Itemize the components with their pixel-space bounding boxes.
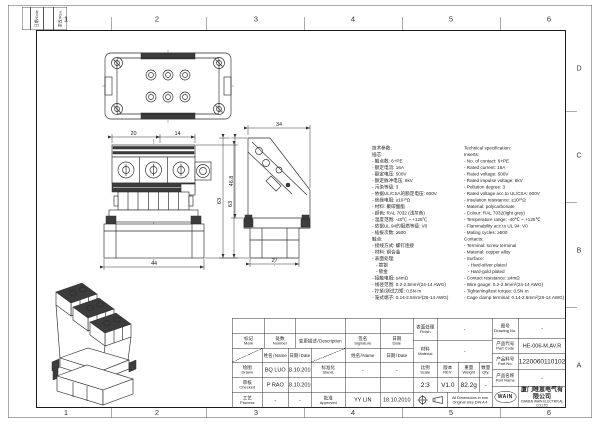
drawing-no-value: - [518,318,566,339]
margin-tick [402,408,403,418]
rev-value: V1.0 [437,377,459,393]
corner-cell: 更改/Rev. [53,7,67,30]
margin-tick [566,112,577,113]
weight-value: 82.2g [458,377,480,393]
label-material: 材料 Material [413,340,438,363]
spec-chinese-column: 技术参数:插芯:- 触点数: 6+PE- 额定电流: 16A- 额定电压: 50… [372,145,461,301]
projection-symbols [413,392,448,408]
corner-cell: 日期/Date [30,7,44,30]
margin-tick [402,17,403,30]
column-label: 4 [343,409,363,418]
spec-line-en: - Cage clamp terminal: 0.14-2.5mm²(26-14… [464,295,565,302]
header-number: 处数 Number [265,333,296,349]
process-date: - [288,392,312,408]
revision-cell-empty [345,377,381,393]
material-value: - [437,340,493,363]
corner-label: 更改/Rev. [57,10,63,27]
margin-tick [305,408,306,418]
label-drawn: 绘图 Drawn [232,362,263,378]
revision-cell-empty [345,318,381,334]
subheader-name: 姓名/Name [345,348,381,363]
dim-label: 63 [217,198,223,204]
margin-tick [500,17,501,30]
column-label: 6 [539,409,559,418]
header-mark: 标记 Mark [232,333,265,349]
margin-tick [207,17,208,30]
column-label: 6 [539,15,559,24]
row-label: C [573,151,585,159]
revision-cell-empty [380,377,414,393]
dimension-note: All Dimensions in mm Original Size DIN A… [448,392,493,408]
dim-label: 20 [130,131,136,137]
margin-tick [566,203,577,204]
label-stand: 标准化 Stand. [311,362,346,378]
dim-label: 14 [174,131,180,137]
header-date: 日期 Date [380,333,414,349]
label-part-code: 产品代号 Part Code [492,338,519,354]
label-finish: 表面处理 Finish [413,318,438,341]
label-qty: 数量 Qty. [479,362,493,378]
part-no-value: 1220060110102 [518,353,566,370]
revision-cell-empty [380,318,414,334]
approved-date: 18.10.2010 [380,392,414,408]
side-view-drawing: 34 46.8 63 27 [212,120,322,270]
subheader-date: 日期/Date [380,348,414,363]
part-name-value: - [518,369,566,387]
revision-cell-empty [295,318,346,334]
revision-cell-empty [265,318,296,334]
label-drawing-no: 图号 Drawing No. [492,318,519,339]
wain-logo: WAIN [494,391,516,403]
column-label: 4 [343,15,363,24]
column-label: 5 [441,409,461,418]
company-cell: 厦门唯恩电气有限公司 XIAMEN WAIN ELECTRICAL CO.LTD [518,386,566,408]
label-approved: 批准 Approved [311,392,346,408]
diagonal-cell [311,348,346,363]
column-label: 2 [147,409,167,418]
drawn-date: 18.10.2010 [288,362,312,378]
dim-label: 34 [276,122,282,128]
checked-date: 18.10.2010 [288,377,312,393]
row-label: D [573,64,585,72]
column-label: 3 [246,409,266,418]
margin-tick [112,17,113,30]
label-process: 工艺 Process [232,392,263,408]
drawing-sheet-viewport: 1 2 3 4 5 6 1 2 3 4 5 6 D C B A 日期/Date … [0,0,600,424]
margin-tick [305,17,306,30]
label-checked: 审核 Checked [232,377,263,393]
label-part-name: 产品名称 Part Name [492,369,519,387]
dim-label: 27 [271,258,277,264]
margin-tick [500,408,501,418]
stand-name: - [345,362,381,378]
spec-line-cn: - 笼式端子: 0.14-2.5mm²(26-14 AWG) [372,295,461,302]
company-name-en: XIAMEN WAIN ELECTRICAL CO.LTD [519,400,566,408]
row-label: A [573,361,585,369]
column-label: 3 [246,15,266,24]
spec-english-column: Technical specification:Inserts:- No. of… [464,145,565,301]
company-name-cn: 厦门唯恩电气有限公司 [519,386,566,400]
column-label: 2 [147,15,167,24]
finish-value: - [437,318,493,341]
stand-date: - [380,362,414,378]
first-angle-projection-icon [417,395,428,406]
revision-cell-empty [311,377,346,393]
part-code-value: HE-006-M.AV.R [518,338,566,354]
approved-name: YY LIN [345,392,381,408]
subheader-name: 姓名/Name [262,348,289,363]
corner-label: 日期/Date [34,10,40,28]
margin-tick [112,408,113,418]
truncated-cone-icon [432,396,444,405]
top-view-drawing [98,47,238,126]
process-name: - [262,392,289,408]
qty-value: - [479,377,493,393]
header-signature: 签名 Signature [345,333,381,349]
row-label: B [573,246,585,254]
margin-tick [207,408,208,418]
label-scale: 比例 Scale [413,362,438,378]
column-label: 1 [56,409,76,418]
label-weight: 重量 Weight [458,362,480,378]
dim-label: 46.8 [229,176,235,187]
drawing-sheet: 1 2 3 4 5 6 1 2 3 4 5 6 D C B A 日期/Date … [0,0,600,424]
diagonal-cell [232,348,263,363]
header-description: 变更描述/Description [295,333,346,349]
isometric-view-drawing [27,260,157,406]
scale-value: 2:3 [413,377,438,393]
label-part-no: 产品料号 Part No. [492,353,519,370]
company-logo-cell: WAIN [492,386,519,408]
subheader-date: 日期/Date [288,348,312,363]
checked-name: P RAO [262,377,289,393]
column-label: 5 [441,15,461,24]
revision-cell-empty [232,318,265,334]
label-rev: 版本 REV. [437,362,459,378]
drawn-name: BQ LUO [262,362,289,378]
margin-tick [566,308,577,309]
